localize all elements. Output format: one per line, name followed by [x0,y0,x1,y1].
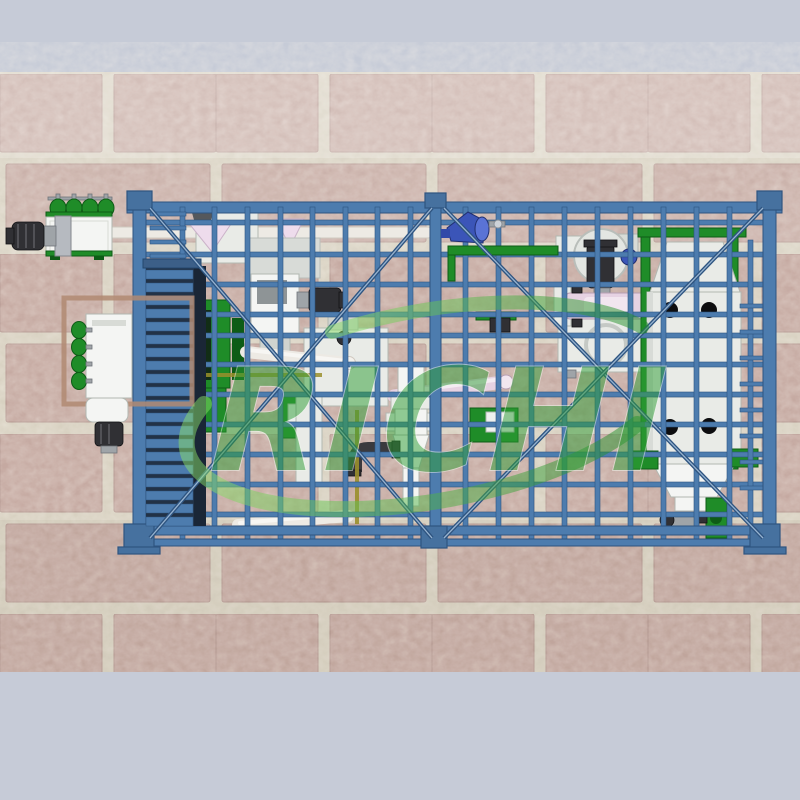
top-gray-band [0,0,800,72]
scene-svg: RICHI [0,0,800,800]
bottom-gray-band [0,672,800,800]
column-cap [757,191,782,210]
top-beam [127,202,782,213]
fan-motor [587,244,614,288]
column-cap [127,191,152,210]
feeder-motor [12,222,44,250]
watermark-richi: RICHI [190,339,689,504]
column-right [763,207,776,529]
render-canvas: RICHI [0,0,800,800]
watermark-text: RICHI [190,339,689,504]
distributor-body [86,314,132,398]
green-rail [448,246,558,255]
column-left [133,207,146,529]
column-cap [425,193,446,208]
feeder-gearbox [55,216,71,256]
wall-highlight-top [0,72,800,158]
